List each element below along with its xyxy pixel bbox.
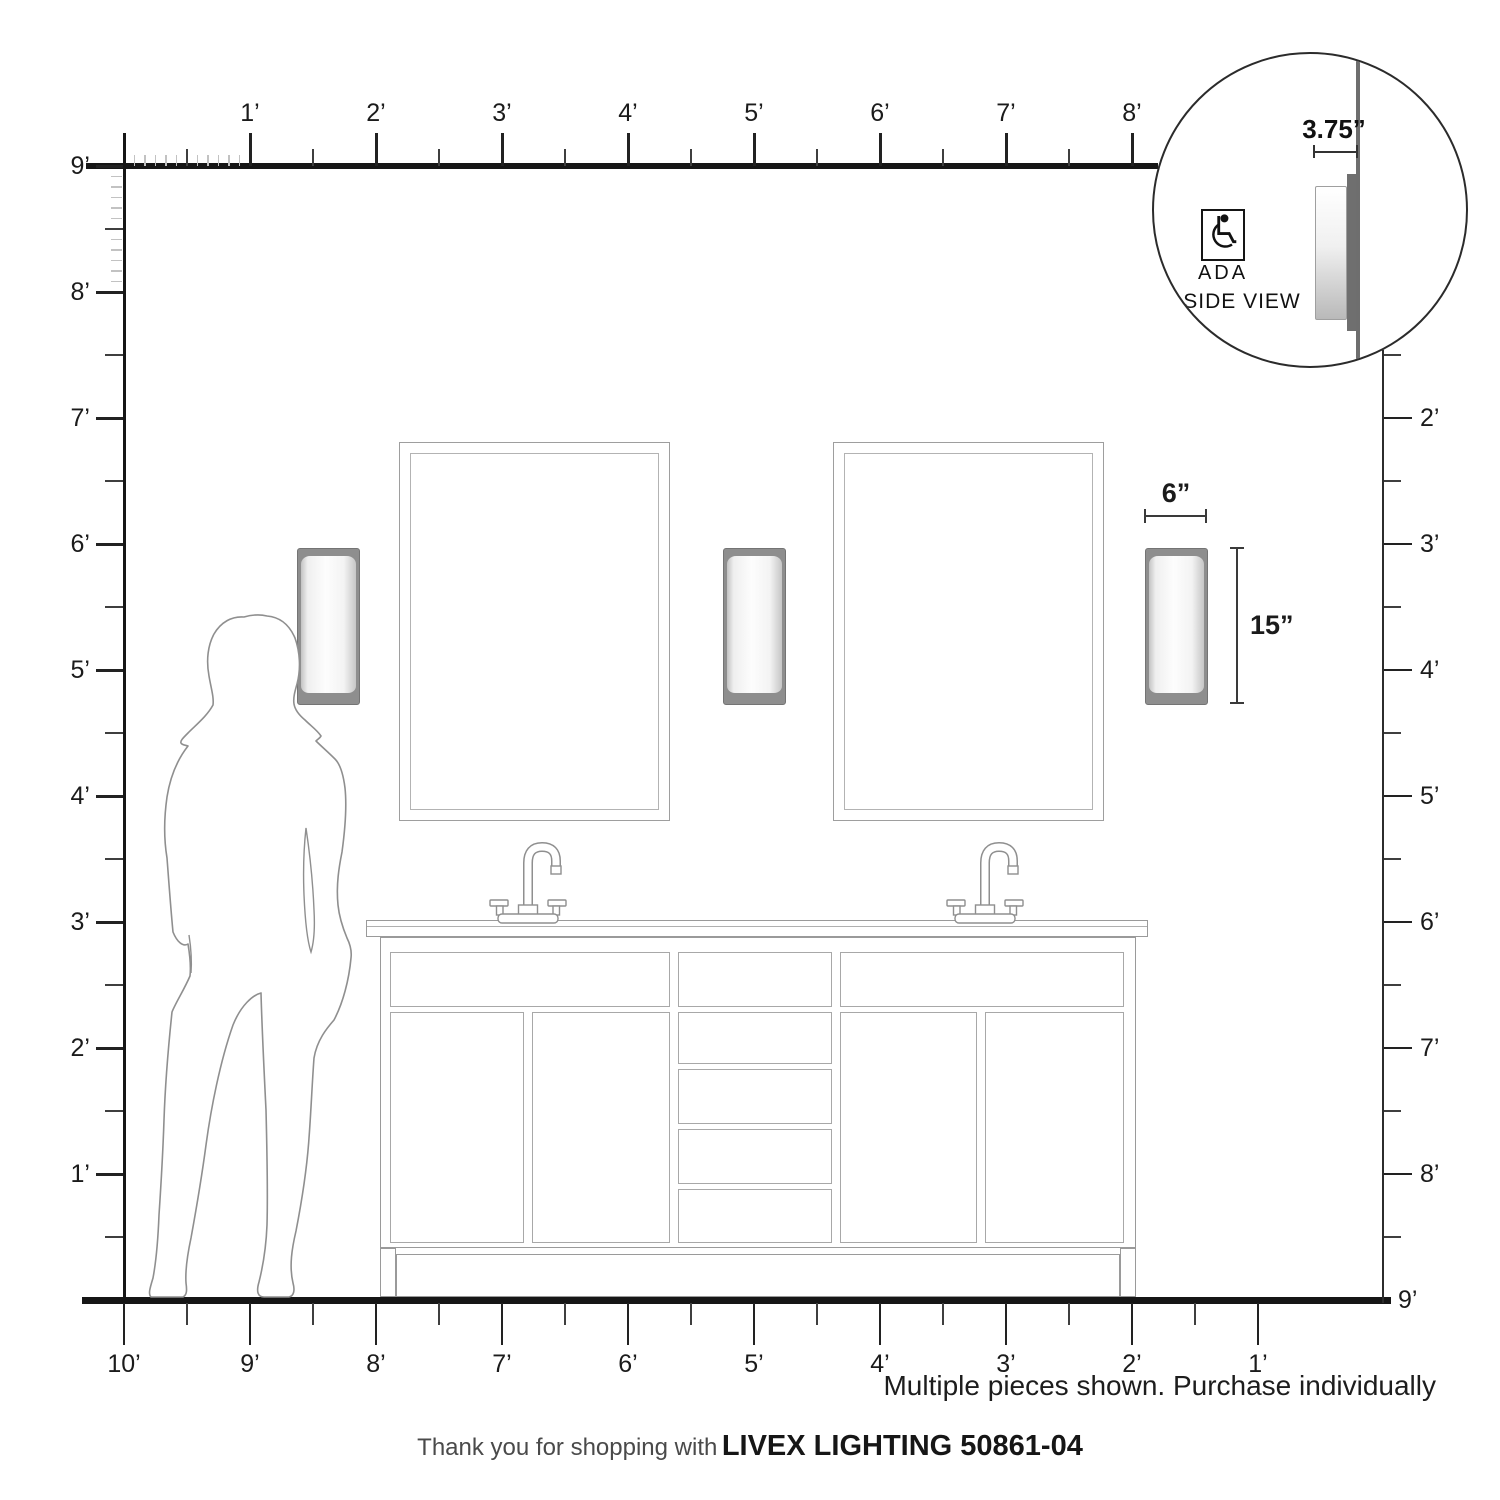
ceiling-line [86,163,1158,169]
right-ruler-label: 3’ [1420,529,1439,559]
right-ruler-label: 6’ [1420,907,1439,937]
top-ruler-inch-tick [218,155,220,166]
countertop-edge-line [367,926,1147,927]
ada-label: ADA [1193,262,1253,285]
mirror-right-inner-frame [844,453,1093,810]
bottom-ruler-half-tick [1194,1303,1196,1325]
left-ruler-foot-tick [96,291,123,294]
depth-extent-cap-left [1313,145,1315,158]
top-ruler-half-tick [564,149,566,166]
bottom-ruler-foot-tick [375,1303,378,1345]
top-ruler-inch-tick [176,155,178,166]
left-ruler-half-tick [105,1110,123,1112]
width-extent-cap-left [1144,509,1146,523]
left-ruler-inch-tick [111,218,122,220]
top-ruler-label: 3’ [472,98,532,128]
top-ruler-foot-tick [249,133,252,166]
bottom-ruler-half-tick [438,1303,440,1325]
footer-product-code: LIVEX LIGHTING 50861-04 [722,1430,1083,1462]
left-ruler-inch-tick [111,270,122,272]
vanity-kickboard [396,1254,1120,1297]
top-ruler-inch-tick [165,155,167,166]
top-ruler-inch-tick [228,155,230,166]
right-ruler-label: 5’ [1420,781,1439,811]
bottom-ruler-half-tick [564,1303,566,1325]
left-ruler-half-tick [105,480,123,482]
disclaimer-text: Multiple pieces shown. Purchase individu… [883,1370,1436,1402]
top-ruler-inch-tick [207,155,209,166]
top-ruler-inch-tick [144,155,146,166]
right-ruler-foot-tick [1384,795,1412,798]
left-ruler-label: 4’ [24,781,90,811]
cabinet-door-2 [532,1012,670,1243]
bottom-ruler-foot-tick [1257,1303,1260,1345]
top-ruler-half-tick [816,149,818,166]
left-ruler-inch-tick [111,197,122,199]
bottom-ruler-half-tick [942,1303,944,1325]
width-extent-cap-right [1205,509,1207,523]
bottom-ruler-half-tick [816,1303,818,1325]
left-ruler-foot-tick [96,921,123,924]
side-view-inset: 3.75” ADA SIDE VIEW [1152,52,1468,368]
side-view-label: SIDE VIEW [1177,290,1307,314]
top-ruler-label: 8’ [1102,98,1162,128]
left-ruler-foot-tick [96,795,123,798]
bottom-ruler-foot-tick [501,1303,504,1345]
mirror-left [399,442,670,821]
vanity-countertop [366,920,1148,937]
top-ruler-label: 1’ [220,98,280,128]
mirror-right [833,442,1104,821]
bottom-ruler-label: 5’ [719,1349,789,1379]
top-ruler-inch-tick [155,155,157,166]
left-ruler-half-tick [105,732,123,734]
top-ruler-label: 7’ [976,98,1036,128]
top-ruler-half-tick [942,149,944,166]
wheelchair-icon [1204,213,1242,257]
left-ruler-foot-tick [96,165,123,168]
top-ruler-foot-tick [627,133,630,166]
bottom-ruler-half-tick [312,1303,314,1325]
footer-text: Thank you for shopping with LIVEX LIGHTI… [0,1430,1500,1463]
cabinet-door-4 [985,1012,1124,1243]
right-ruler-half-tick [1384,1236,1401,1238]
right-ruler-label: 7’ [1420,1033,1439,1063]
drawer-1 [678,1012,832,1064]
bottom-ruler-foot-tick [249,1303,252,1345]
wall-line [1356,54,1360,368]
bottom-ruler-foot-tick [1005,1303,1008,1345]
height-extent-cap-bottom [1230,702,1244,704]
sconce-right-shade [1149,556,1204,693]
product-dimension-diagram: 1’2’3’4’5’6’7’8’9’8’7’6’5’4’3’2’1’2’3’4’… [0,0,1500,1500]
top-ruler-foot-tick [375,133,378,166]
right-ruler-foot-tick [1384,1173,1412,1176]
drawer-2 [678,1069,832,1124]
right-ruler-half-tick [1384,858,1401,860]
left-ruler-inch-tick [111,239,122,241]
sconce-height-dimension: 15” [1250,610,1294,641]
bottom-ruler-foot-tick [1131,1303,1134,1345]
faucet-right [947,847,1023,923]
vanity-leg-right [1120,1248,1136,1297]
bottom-ruler-half-tick [690,1303,692,1325]
bottom-ruler-foot-tick [879,1303,882,1345]
left-ruler-foot-tick [96,669,123,672]
sconce-right [1145,548,1208,705]
left-ruler-half-tick [105,984,123,986]
mirror-left-inner-frame [410,453,659,810]
right-ruler-foot-tick [1384,669,1412,672]
drawer-3 [678,1129,832,1184]
sconce-side-shade [1315,186,1347,320]
left-ruler-half-tick [105,1236,123,1238]
bottom-ruler-label: 6’ [593,1349,663,1379]
top-ruler-half-tick [1068,149,1070,166]
left-ruler-inch-tick [111,249,122,251]
bottom-ruler-half-tick [186,1303,188,1325]
left-ruler-inch-tick [111,186,122,188]
bottom-ruler-label: 10’ [89,1349,159,1379]
cabinet-door-3 [840,1012,977,1243]
left-ruler-inch-tick [111,281,122,283]
person-silhouette [150,615,352,1297]
left-ruler-label: 8’ [24,277,90,307]
right-ruler-label: 8’ [1420,1159,1439,1189]
bottom-ruler-label: 8’ [341,1349,411,1379]
top-ruler-inch-tick [197,155,199,166]
left-ruler-half-tick [105,228,123,230]
left-ruler-label: 7’ [24,403,90,433]
right-ruler-label: 2’ [1420,403,1439,433]
sconce-center-shade [727,556,782,693]
bottom-ruler-label: 9’ [215,1349,285,1379]
sconce-width-dimension: 6” [1136,478,1216,509]
left-ruler-label: 9’ [24,151,90,181]
right-ruler-label: 4’ [1420,655,1439,685]
right-ruler-half-tick [1384,732,1401,734]
bottom-ruler-half-tick [1068,1303,1070,1325]
left-ruler-foot-tick [96,1173,123,1176]
left-ruler-inch-tick [111,176,122,178]
top-ruler-inch-tick [239,155,241,166]
top-ruler-foot-tick [753,133,756,166]
left-ruler-label: 5’ [24,655,90,685]
left-ruler-label: 6’ [24,529,90,559]
left-ruler-foot-tick [96,1047,123,1050]
left-ruler-half-tick [105,858,123,860]
top-ruler-foot-tick [1131,133,1134,166]
side-view-depth-dimension: 3.75” [1279,114,1389,145]
right-ruler-half-tick [1384,1110,1401,1112]
top-ruler-label: 4’ [598,98,658,128]
false-front-center [678,952,832,1007]
sconce-side-backplate [1347,174,1356,331]
cabinet-door-1 [390,1012,524,1243]
left-ruler-half-tick [105,354,123,356]
right-ruler-line [1382,350,1384,1303]
top-ruler-half-tick [690,149,692,166]
left-ruler-label: 3’ [24,907,90,937]
right-ruler-half-tick [1384,606,1401,608]
top-ruler-label: 6’ [850,98,910,128]
right-ruler-half-tick [1384,354,1401,356]
depth-extent-cap-right [1356,145,1358,158]
height-extent-cap-top [1230,547,1244,549]
right-ruler-foot-tick [1384,1047,1412,1050]
sconce-left-shade [301,556,356,693]
bottom-ruler-foot-tick [753,1303,756,1345]
right-ruler-label: 9’ [1398,1285,1417,1315]
width-extent-line [1145,515,1207,517]
bottom-ruler-foot-tick [627,1303,630,1345]
vanity-leg-left [380,1248,396,1297]
top-ruler-label: 5’ [724,98,784,128]
left-ruler-label: 2’ [24,1033,90,1063]
bottom-ruler-label: 7’ [467,1349,537,1379]
faucet-left [490,847,566,923]
right-ruler-foot-tick [1384,543,1412,546]
ada-compliance-box [1201,209,1245,261]
left-ruler-half-tick [105,606,123,608]
right-ruler-foot-tick [1384,921,1412,924]
sconce-center [723,548,786,705]
sconce-left [297,548,360,705]
top-ruler-half-tick [438,149,440,166]
left-ruler-label: 1’ [24,1159,90,1189]
left-ruler-foot-tick [96,417,123,420]
right-ruler-half-tick [1384,480,1401,482]
top-ruler-inch-tick [134,155,136,166]
left-ruler-line [123,133,126,1303]
depth-extent-line [1313,151,1358,153]
left-ruler-inch-tick [111,207,122,209]
left-ruler-inch-tick [111,260,122,262]
top-ruler-half-tick [312,149,314,166]
top-ruler-foot-tick [879,133,882,166]
bottom-ruler-foot-tick [123,1303,126,1345]
left-ruler-foot-tick [96,543,123,546]
false-front-right [840,952,1124,1007]
top-ruler-label: 2’ [346,98,406,128]
right-ruler-half-tick [1384,984,1401,986]
false-front-left [390,952,670,1007]
top-ruler-foot-tick [501,133,504,166]
footer-thanks-text: Thank you for shopping with [417,1434,717,1461]
top-ruler-foot-tick [1005,133,1008,166]
height-extent-line [1236,548,1238,704]
right-ruler-foot-tick [1384,417,1412,420]
top-ruler-half-tick [186,149,188,166]
drawer-4 [678,1189,832,1243]
